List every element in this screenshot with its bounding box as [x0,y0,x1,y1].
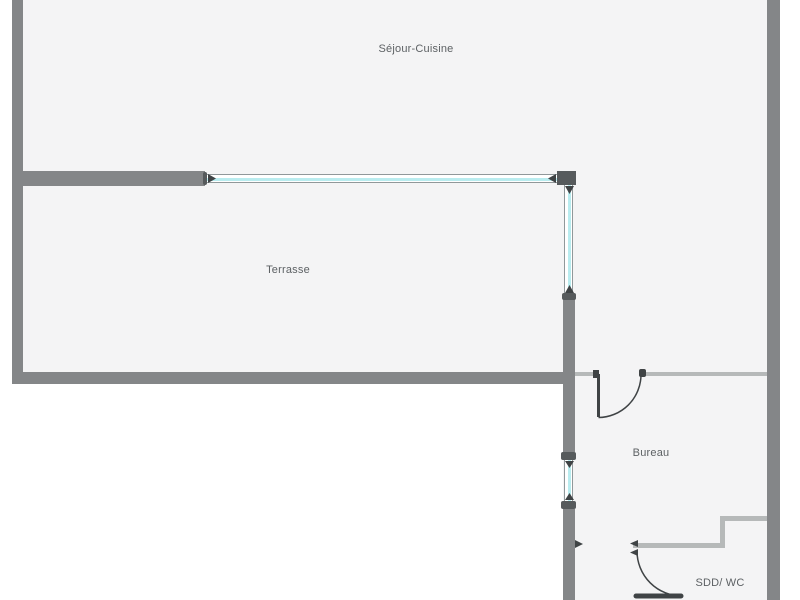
wall-sdd-step-top [722,516,767,521]
window-terrasse-horizontal [205,174,557,183]
floor-upper-area [23,0,767,372]
room-label-sejour-cuisine: Séjour-Cuisine [379,43,454,55]
window-glass-stripe [568,459,571,502]
window-glass-stripe [205,178,557,181]
wall-terrasse-bottom [12,372,575,384]
wall-middle-upper-segment [563,296,575,452]
room-label-terrasse: Terrasse [266,264,310,276]
wall-sdd-top [633,543,725,548]
wall-bureau-top-right [641,372,767,376]
window-end-cap-lower-top [561,452,576,460]
window-terrasse-vertical [564,185,573,293]
floor-right-area [563,372,767,600]
window-glass-stripe [568,185,571,293]
room-label-bureau: Bureau [633,447,670,459]
window-end-cap-upper-bottom [562,293,576,300]
wall-middle-lower-segment [563,509,575,600]
wall-left-exterior [12,0,23,384]
window-bureau-vertical [564,459,573,502]
wall-bureau-top-left-stub [575,372,598,376]
wall-right-exterior [767,0,780,600]
window-end-cap-lower-bottom [561,501,576,509]
room-label-sdd-wc: SDD/ WC [695,577,744,589]
floor-plan: Séjour-Cuisine Terrasse Bureau SDD/ WC [0,0,800,600]
window-end-bracket-left [203,172,207,185]
wall-terrasse-top [23,171,205,186]
wall-corner-block [557,171,576,185]
